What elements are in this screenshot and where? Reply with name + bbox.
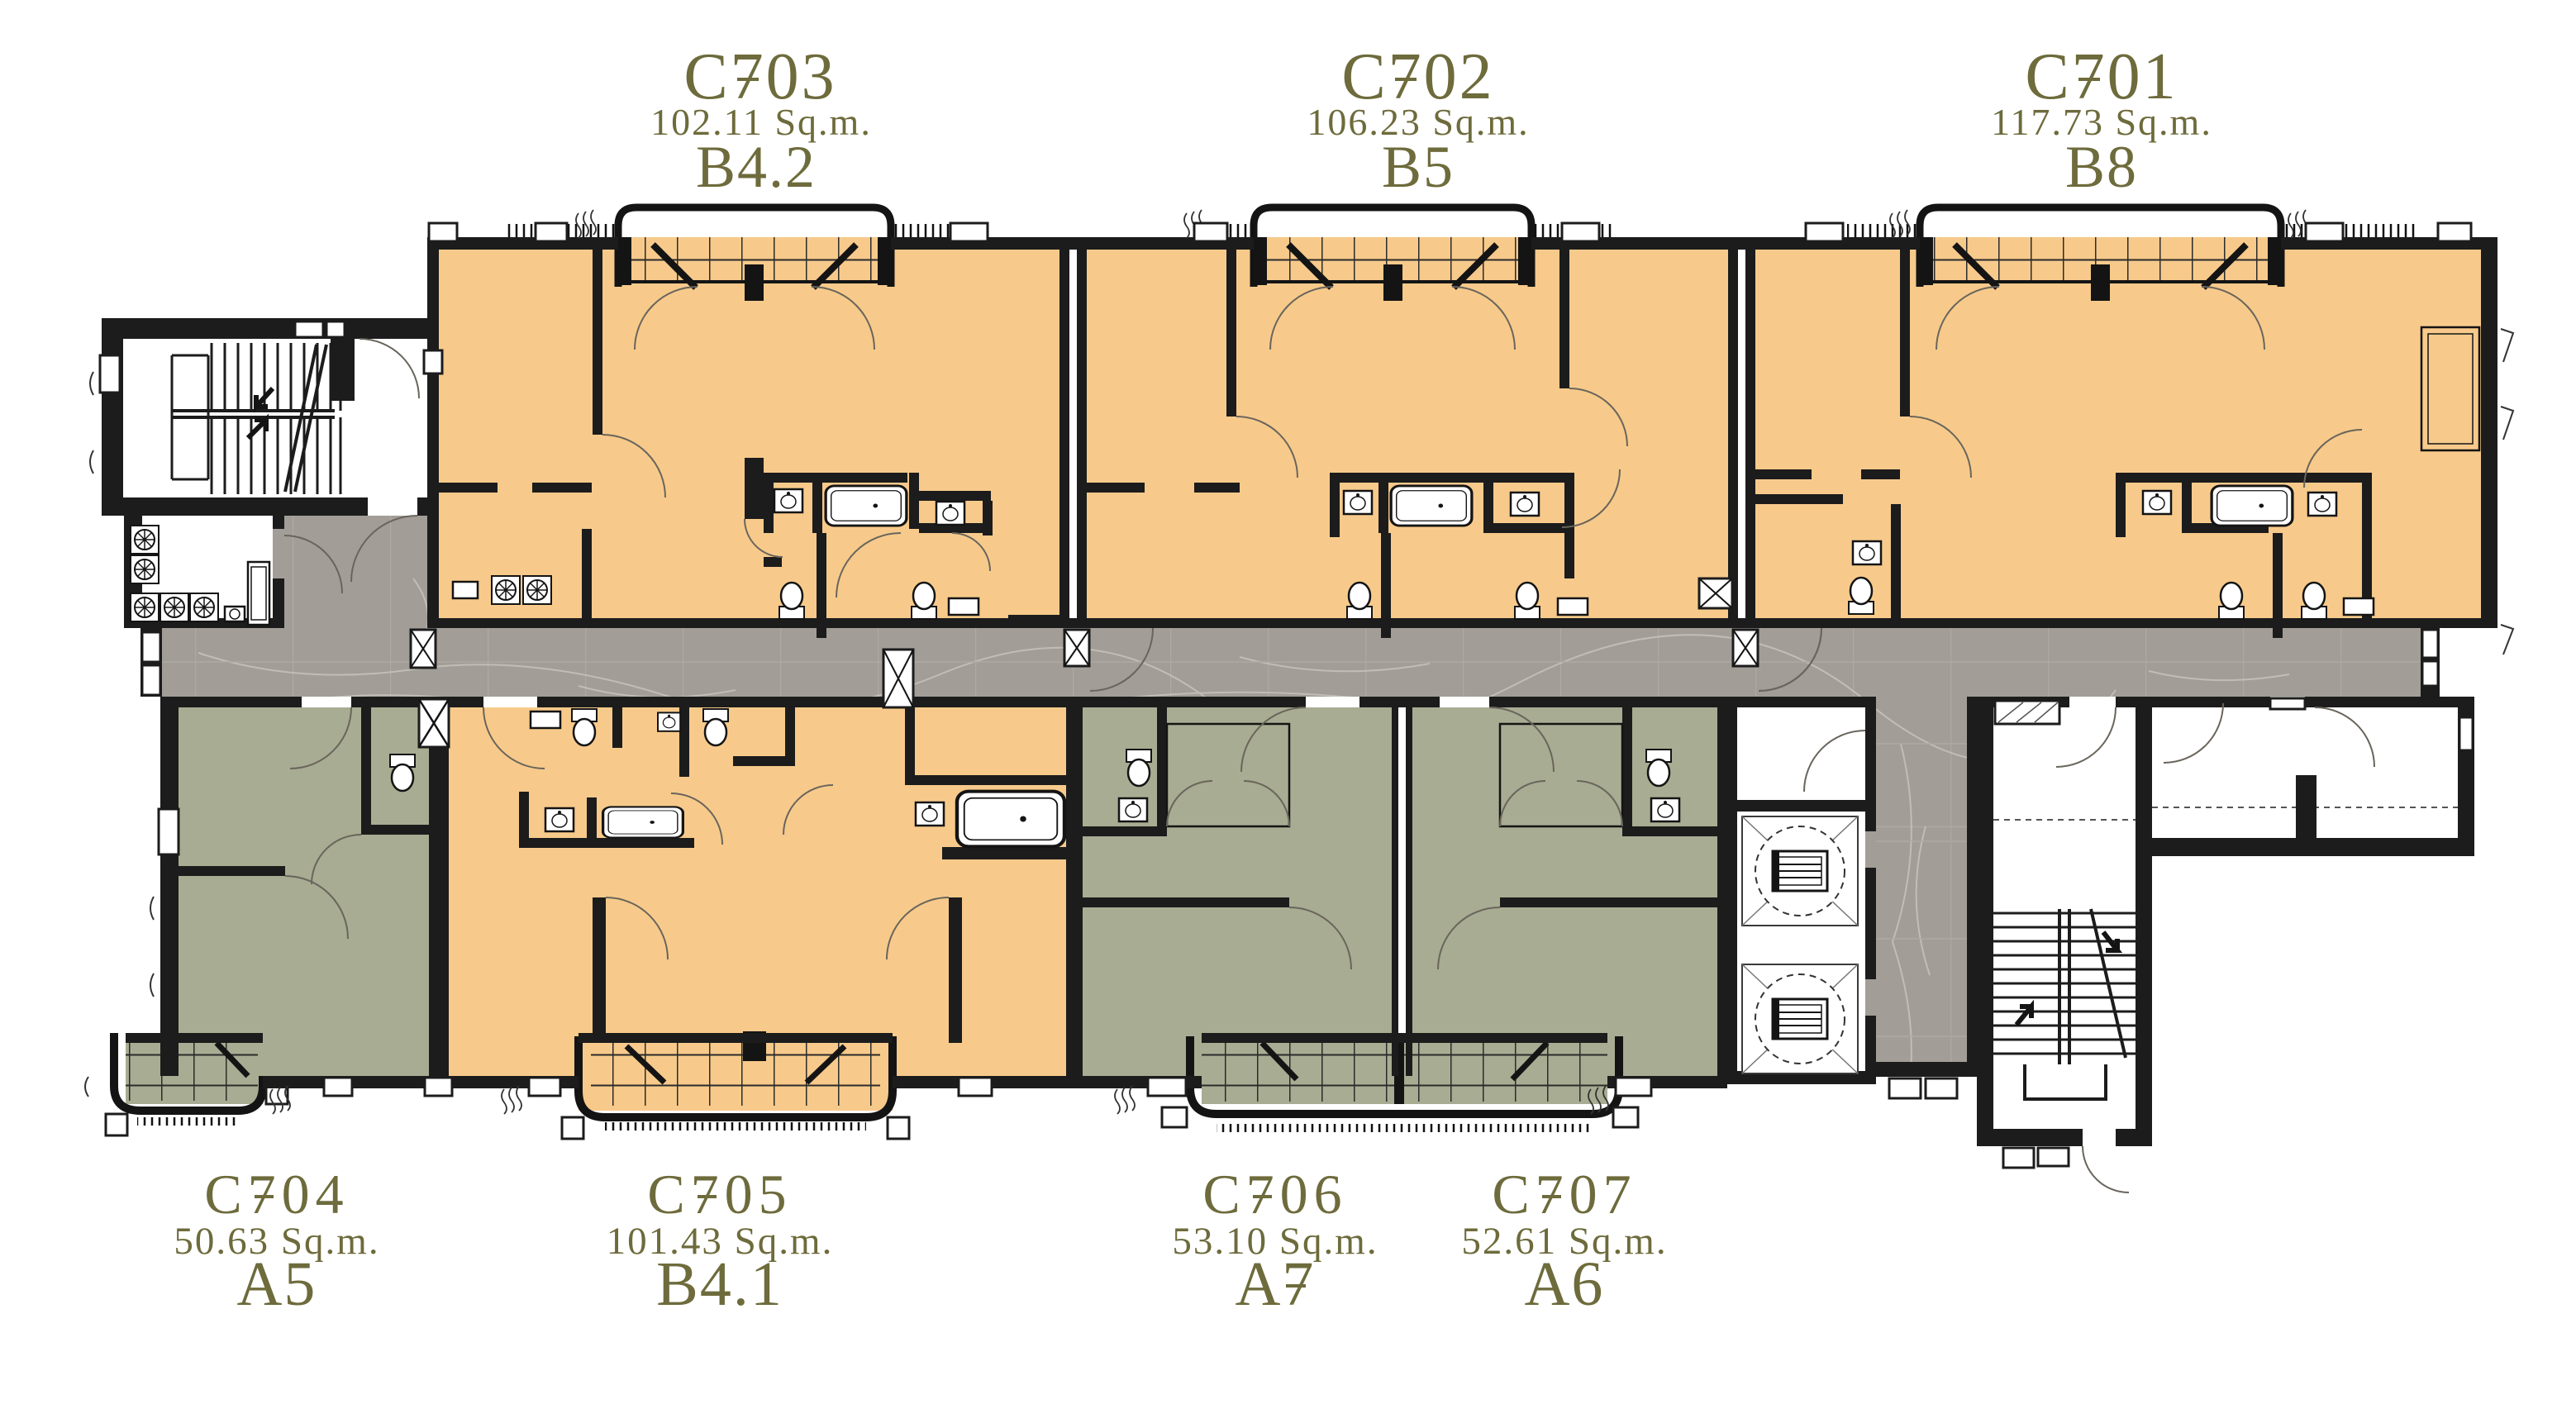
svg-text:C707: C707: [1492, 1163, 1636, 1226]
svg-text:C706: C706: [1202, 1163, 1347, 1226]
svg-text:C704: C704: [204, 1163, 349, 1226]
svg-text:B4.1: B4.1: [656, 1249, 783, 1319]
svg-text:B4.2: B4.2: [696, 134, 817, 200]
svg-text:A5: A5: [237, 1249, 317, 1319]
svg-text:A6: A6: [1525, 1249, 1605, 1319]
svg-text:B5: B5: [1382, 134, 1455, 200]
svg-text:B8: B8: [2065, 134, 2138, 200]
svg-text:C705: C705: [647, 1163, 792, 1226]
